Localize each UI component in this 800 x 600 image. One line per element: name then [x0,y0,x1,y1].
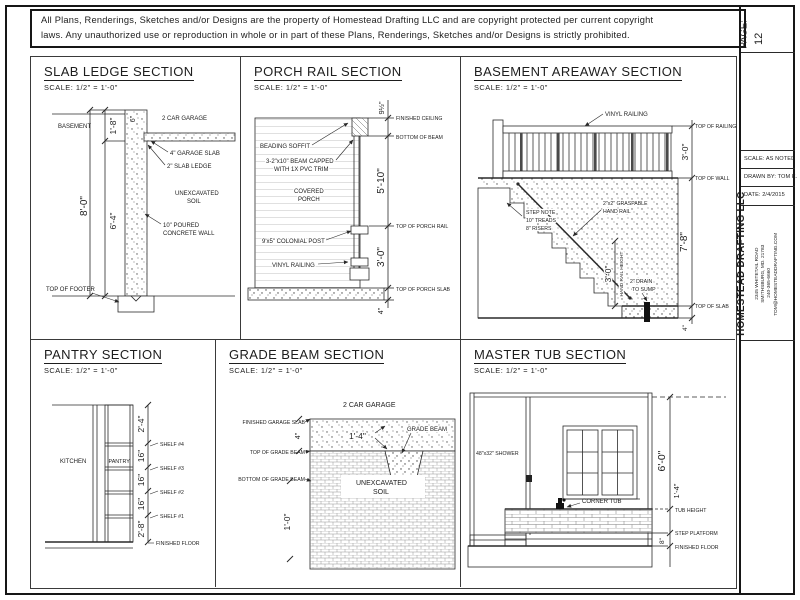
panel-porch-rail: 9½" 5'-10" 3'-0" 4" BEADING SOFFIT 3-2"x… [240,56,460,339]
panel-grade-beam: 1'-4" 4" 1'-0" 2 CAR GARAGE GRADE BEAM F… [215,339,460,587]
section-scale: SCALE: 1/2" = 1'-0" [254,83,328,92]
master-tub-labels: 48"x32" SHOWER CORNER TUB TUB HEIGHT STE… [476,451,719,551]
label-handrail-2: HAND RAIL [603,209,631,215]
master-tub-linework [468,393,652,567]
dim-slab: 4" [682,324,689,331]
pantry-drawing: 2'-4" 16" 16" 16" 2'-8" KITCHEN PANTRY S… [30,339,215,587]
label-step-1: STEP NOTE [526,210,556,216]
section-scale: SCALE: 1/2" = 1'-0" [474,366,548,375]
dim-ceiling: 9½" [377,101,386,114]
dim-tub: 1'-4" [672,483,681,498]
grade-beam-drawing: 1'-4" 4" 1'-0" 2 CAR GARAGE GRADE BEAM F… [215,339,460,587]
scale-note: SCALE: AS NOTED [744,151,794,168]
dim-wall: 5'-10" [376,168,387,194]
label-beam-bottom: BOTTOM OF GRADE BEAM [238,477,305,483]
label-step-3: 8" RISERS [526,226,552,232]
label-kitchen: KITCHEN [60,459,86,465]
label-pantry: PANTRY [109,459,131,465]
section-title: MASTER TUB SECTION [474,347,626,362]
company-email: TOM@HOMESTEADDRAFTING.COM [775,233,780,316]
label-soffit: BEADING SOFFIT [260,144,310,150]
dim-rail: 3'-0" [376,247,387,267]
label-railing: VINYL RAILING [605,112,648,118]
title-block-divider [741,205,795,206]
dim-upper: 1'-8" [108,118,118,135]
dim-depth: 1'-0" [282,514,292,531]
label-beam-1: 3-2"x10" BEAM CAPPED [266,159,334,165]
label-soil-1: UNEXCAVATED [356,480,407,487]
pantry-linework [45,405,133,548]
company-name: HOMESTEAD DRAFTING LLC [737,192,747,336]
dim-wall-top: 6" [130,115,137,122]
label-beam-2: WITH 1X PVC TRIM [274,167,329,173]
section-title: BASEMENT AREAWAY SECTION [474,64,682,79]
label-finished-slab: FINISHED GARAGE SLAB [242,420,305,426]
dim-slab: 4" [295,432,302,439]
title-block-divider [741,52,795,53]
dim-handrail: 3'-0" [603,266,613,283]
copyright-line-2: laws. Any unauthorized use or reproducti… [41,28,744,43]
section-title: SLAB LEDGE SECTION [44,64,194,79]
section-scale: SCALE: 1/2" = 1'-0" [44,83,118,92]
dim-gap-c: 16" [136,498,146,510]
dim-wall: 7'-8" [679,232,690,252]
label-top-of-railing: TOP OF RAILING [695,124,736,130]
porch-rail-drawing: 9½" 5'-10" 3'-0" 4" BEADING SOFFIT 3-2"x… [240,56,460,339]
label-beam-top: TOP OF GRADE BEAM [250,450,305,456]
drawing-sheet: { "copyright": { "line1": "All Plans, Re… [0,0,800,600]
label-wall-1: 10" POURED [163,223,200,229]
dim-beam-width: 1'-4" [349,431,366,441]
label-top-of-footer: TOP OF FOOTER [46,287,95,293]
label-railing: VINYL RAILING [272,263,315,269]
label-finished-floor: FINISHED FLOOR [675,545,719,551]
dim-gap-b: 16" [136,474,146,486]
dim-overall: 8'-0" [79,196,90,216]
label-garage-slab: 4" GARAGE SLAB [170,151,220,157]
label-porch-1: COVERED [294,189,324,195]
areaway-drawing: 3'-0" 7'-8" 4" 3'-0" HAND RAIL HEIGHT VI… [460,56,737,339]
section-scale: SCALE: 1/2" = 1'-0" [474,83,548,92]
page-number: 12 [754,33,765,45]
dim-railing: 3'-0" [680,144,690,161]
label-corner-tub: CORNER TUB [582,499,622,505]
label-top-of-slab: TOP OF PORCH SLAB [396,287,451,293]
label-porch-2: PORCH [298,197,320,203]
section-title: GRADE BEAM SECTION [229,347,384,362]
label-shelf-2: SHELF #2 [160,490,184,496]
section-scale: SCALE: 1/2" = 1'-0" [229,366,303,375]
label-top-of-wall: TOP OF WALL [695,176,730,182]
company-phone: 240-365-6660 [768,268,773,298]
label-shelf-4: SHELF #4 [160,442,184,448]
section-title: PANTRY SECTION [44,347,162,362]
label-slab-ledge: 2" SLAB LEDGE [167,164,211,170]
label-grade-beam: GRADE BEAM [407,427,447,433]
label-drain-1: 2" DRAIN [630,279,653,285]
dim-lower: 6'-4" [108,213,118,230]
label-handrail-1: 2"x2" GRASPABLE [603,201,648,207]
panel-master-tub: 6'-0" 1'-4" 8" 48"x32" SHOWER CORNER TUB… [460,339,737,587]
dim-platform: 8" [659,537,666,544]
copyright-notice: All Plans, Renderings, Sketches and/or D… [30,9,746,48]
label-step-2: 10" TREADS [526,218,557,224]
dim-bottom: 2'-8" [136,521,146,538]
label-drain-2: TO SUMP [632,287,656,293]
master-tub-drawing: 6'-0" 1'-4" 8" 48"x32" SHOWER CORNER TUB… [460,339,737,587]
panel-basement-areaway: 3'-0" 7'-8" 4" 3'-0" HAND RAIL HEIGHT VI… [460,56,737,339]
section-scale: SCALE: 1/2" = 1'-0" [44,366,118,375]
section-title: PORCH RAIL SECTION [254,64,402,79]
label-soil-1: UNEXCAVATED [175,191,219,197]
title-block: PAGE: 12 SCALE: AS NOTED DRAWN BY: TOM K… [739,5,795,595]
label-top-of-slab: TOP OF SLAB [695,304,729,310]
label-garage: 2 CAR GARAGE [343,402,396,409]
dim-gap-a: 16" [136,450,146,462]
label-finished-ceiling: FINISHED CEILING [396,116,442,122]
label-shelf-1: SHELF #1 [160,514,184,520]
label-step-platform: STEP PLATFORM [675,531,718,537]
panel-slab-ledge: 8'-0" 1'-8" 6'-4" 6" BASEMENT 2 CAR GARA… [30,56,240,339]
label-finished-floor: FINISHED FLOOR [156,541,200,547]
label-soil-2: SOIL [187,199,201,205]
panel-pantry: 2'-4" 16" 16" 16" 2'-8" KITCHEN PANTRY S… [30,339,215,587]
label-garage: 2 CAR GARAGE [162,116,207,122]
title-block-divider [741,340,795,341]
page-label: PAGE: [740,20,750,48]
label-soil-2: SOIL [373,489,389,496]
dim-slab: 4" [378,307,385,314]
label-shelf-3: SHELF #3 [160,466,184,472]
label-top-of-rail: TOP OF PORCH RAIL [396,224,448,230]
date: DATE: 2/4/2015 [744,187,794,204]
drawn-by: DRAWN BY: TOM K. [744,169,794,186]
label-handrail-height: HAND RAIL HEIGHT [619,252,625,297]
pantry-dimensions: 2'-4" 16" 16" 16" 2'-8" [136,402,151,545]
label-basement: BASEMENT [58,124,91,130]
copyright-line-1: All Plans, Renderings, Sketches and/or D… [41,13,744,28]
label-wall-2: CONCRETE WALL [163,231,215,237]
porch-rail-dimensions: 9½" 5'-10" 3'-0" 4" [376,100,391,314]
label-shower: 48"x32" SHOWER [476,451,519,457]
dim-wall: 6'-0" [656,450,668,471]
master-tub-dimensions: 6'-0" 1'-4" 8" [610,394,726,567]
label-tub-height: TUB HEIGHT [675,508,707,514]
slab-ledge-drawing: 8'-0" 1'-8" 6'-4" 6" BASEMENT 2 CAR GARA… [30,56,240,339]
dim-top: 2'-4" [136,416,146,433]
label-bottom-of-beam: BOTTOM OF BEAM [396,135,443,141]
label-post: 9'x5" COLONIAL POST [262,239,325,245]
